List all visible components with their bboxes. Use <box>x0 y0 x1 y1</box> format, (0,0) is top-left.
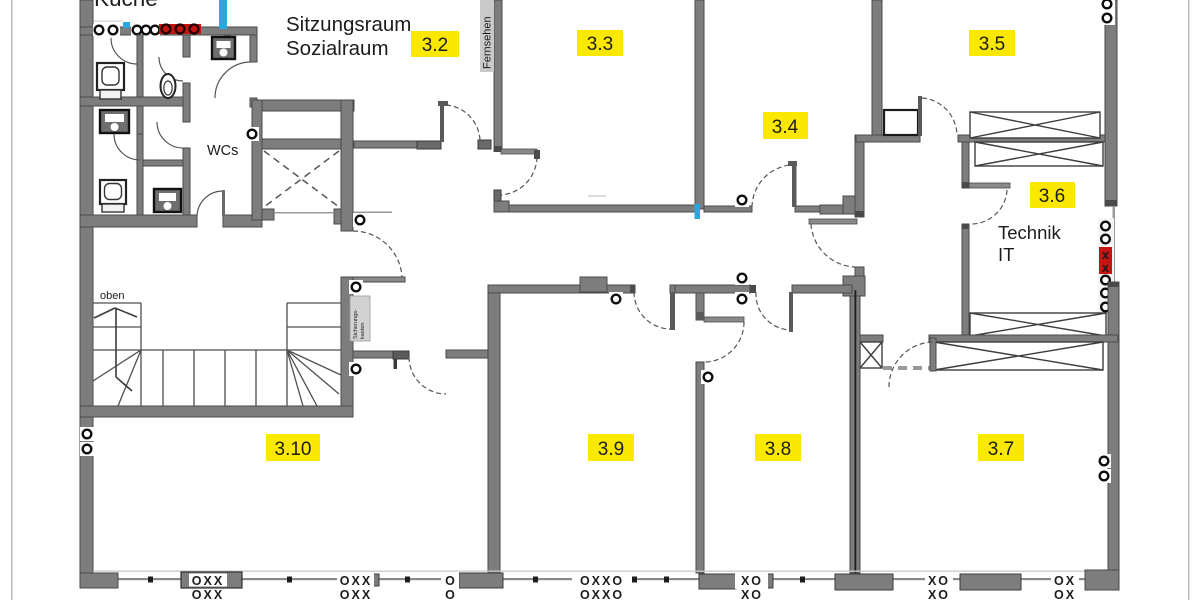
svg-text:Sitzungsraum: Sitzungsraum <box>286 13 411 36</box>
svg-text:O: O <box>445 574 455 588</box>
svg-text:Küche: Küche <box>94 0 158 11</box>
svg-text:Technik: Technik <box>998 222 1061 243</box>
svg-text:WCs: WCs <box>207 143 238 159</box>
svg-text:OX: OX <box>1054 588 1076 600</box>
svg-text:OXX: OXX <box>192 574 224 588</box>
svg-text:Sozialraum: Sozialraum <box>286 37 389 60</box>
svg-text:OX: OX <box>1054 574 1076 588</box>
svg-text:oben: oben <box>100 290 124 302</box>
svg-text:3.2: 3.2 <box>422 35 448 56</box>
svg-text:IT: IT <box>998 244 1014 265</box>
svg-text:x: x <box>1102 248 1109 262</box>
svg-text:Fernsehen: Fernsehen <box>482 16 494 69</box>
svg-text:3.4: 3.4 <box>772 117 799 138</box>
svg-text:3.6: 3.6 <box>1039 186 1065 207</box>
svg-text:XO: XO <box>741 588 763 600</box>
svg-text:Sicherungs-: Sicherungs- <box>353 309 359 339</box>
svg-text:3.9: 3.9 <box>598 439 624 460</box>
svg-text:OXXO: OXXO <box>580 574 624 588</box>
svg-text:3.3: 3.3 <box>587 34 613 55</box>
svg-text:3.7: 3.7 <box>988 439 1014 460</box>
svg-text:XO: XO <box>928 574 950 588</box>
svg-text:x: x <box>1102 261 1109 275</box>
svg-text:OXX: OXX <box>340 588 372 600</box>
svg-text:3.5: 3.5 <box>979 34 1005 55</box>
svg-text:XO: XO <box>741 574 763 588</box>
svg-text:3.8: 3.8 <box>765 439 791 460</box>
svg-text:O: O <box>445 588 455 600</box>
svg-text:3.10: 3.10 <box>275 439 312 460</box>
svg-text:OXXO: OXXO <box>580 588 624 600</box>
svg-text:kasten: kasten <box>360 323 366 339</box>
svg-text:OXX: OXX <box>340 574 372 588</box>
svg-text:OXX: OXX <box>192 588 224 600</box>
svg-text:XO: XO <box>928 588 950 600</box>
